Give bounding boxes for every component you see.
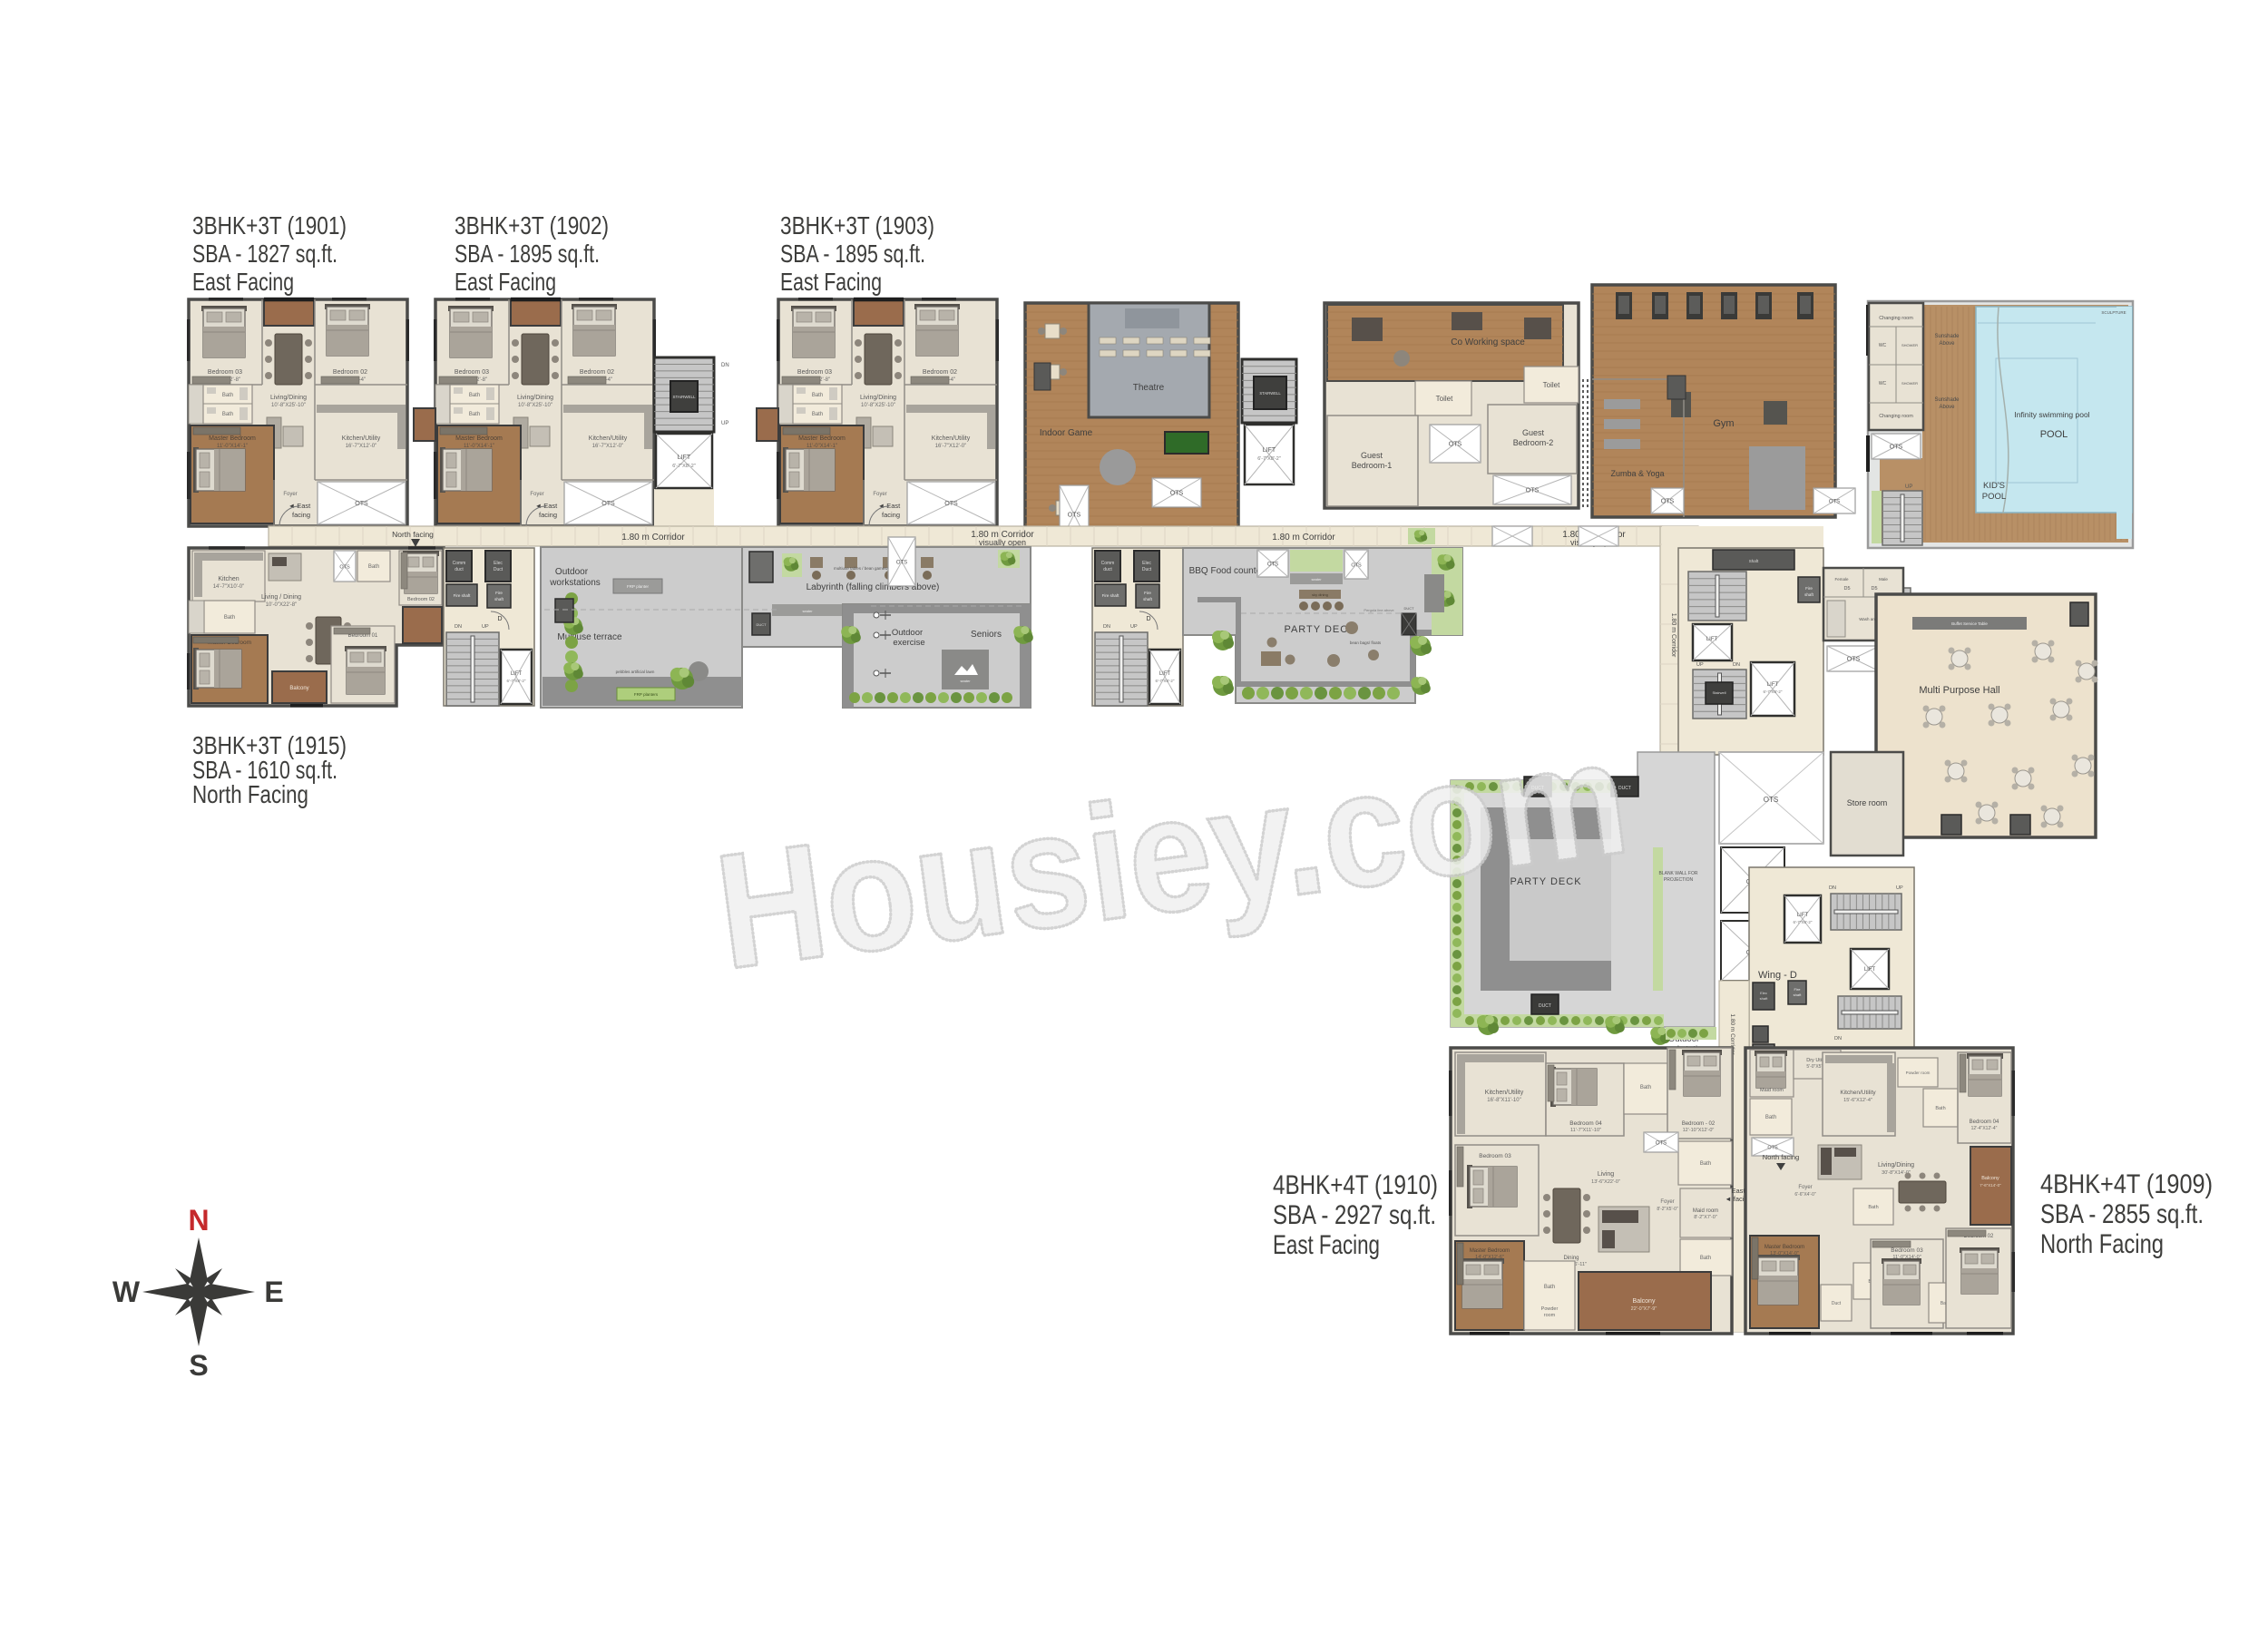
svg-text:Fire shaft: Fire shaft <box>1102 593 1120 598</box>
svg-text:E: E <box>264 1276 283 1308</box>
svg-text:Sunshade: Sunshade <box>1934 334 1960 339</box>
svg-text:◄ East: ◄ East <box>878 502 901 510</box>
svg-text:Bath: Bath <box>1544 1285 1555 1290</box>
svg-text:East Facing: East Facing <box>1273 1230 1380 1260</box>
svg-text:D5: D5 <box>1871 586 1877 592</box>
svg-text:Master Bedroom: Master Bedroom <box>798 435 846 442</box>
svg-text:North facing: North facing <box>392 530 434 539</box>
svg-text:seater: seater <box>802 609 813 613</box>
svg-text:DUCT: DUCT <box>1403 606 1414 611</box>
svg-text:North Facing: North Facing <box>192 780 308 808</box>
svg-text:11'-0"X14'-1": 11'-0"X14'-1" <box>217 444 248 449</box>
svg-text:POOL: POOL <box>2040 429 2068 440</box>
svg-text:FRP planters: FRP planters <box>634 692 659 697</box>
svg-text:DUCT: DUCT <box>1539 1003 1551 1009</box>
svg-text:Bedroom 03: Bedroom 03 <box>208 369 242 376</box>
svg-text:Maid room: Maid room <box>1760 1088 1784 1093</box>
svg-text:OTS: OTS <box>1890 445 1903 451</box>
svg-text:SHOWER: SHOWER <box>1901 343 1918 347</box>
svg-text:Toilet: Toilet <box>1543 381 1560 389</box>
svg-text:Living/Dining: Living/Dining <box>270 395 307 401</box>
svg-text:Powder: Powder <box>1541 1306 1559 1312</box>
svg-text:OTS: OTS <box>1847 657 1861 663</box>
svg-text:SBA - 2855 sq.ft.: SBA - 2855 sq.ft. <box>2040 1199 2204 1229</box>
svg-text:OTS: OTS <box>1829 500 1840 505</box>
svg-text:shaft: shaft <box>1143 597 1153 601</box>
svg-text:Living/Dining: Living/Dining <box>517 395 553 401</box>
svg-text:D: D <box>497 616 502 622</box>
svg-text:Kitchen/Utility: Kitchen/Utility <box>1485 1090 1524 1096</box>
svg-text:Foyer: Foyer <box>283 492 297 497</box>
svg-text:OTS: OTS <box>1170 491 1184 497</box>
svg-text:LIFT: LIFT <box>678 455 691 461</box>
svg-text:SBA - 1895 sq.ft.: SBA - 1895 sq.ft. <box>455 240 600 268</box>
svg-text:Wing - D: Wing - D <box>1758 970 1797 981</box>
svg-text:Living: Living <box>1598 1171 1614 1178</box>
svg-text:Fire shaft: Fire shaft <box>454 593 472 598</box>
svg-text:East Facing: East Facing <box>780 268 882 296</box>
svg-text:Elec: Elec <box>1760 991 1767 995</box>
svg-text:14'-0"X12'-6": 14'-0"X12'-6" <box>1475 1255 1504 1260</box>
svg-text:OTS: OTS <box>1526 488 1540 494</box>
svg-text:shaft: shaft <box>1804 592 1814 597</box>
svg-text:3BHK+3T (1901): 3BHK+3T (1901) <box>192 211 347 240</box>
svg-text:workstations: workstations <box>549 578 601 588</box>
svg-text:Foyer: Foyer <box>1660 1199 1674 1205</box>
svg-text:Seniors: Seniors <box>971 630 1002 640</box>
svg-text:Duct: Duct <box>494 567 503 572</box>
svg-text:visually open: visually open <box>979 538 1026 547</box>
svg-text:Toilet: Toilet <box>1436 395 1453 403</box>
svg-text:Co Working space: Co Working space <box>1451 337 1525 347</box>
svg-text:DN: DN <box>1834 1036 1842 1041</box>
svg-text:OTS: OTS <box>1267 562 1278 568</box>
svg-text:10'-0"X22'-8": 10'-0"X22'-8" <box>266 602 298 608</box>
svg-text:Duct: Duct <box>1832 1301 1842 1306</box>
svg-text:Bath: Bath <box>222 412 233 417</box>
svg-text:Living/Dining: Living/Dining <box>1878 1162 1914 1169</box>
svg-text:Multi Purpose Hall: Multi Purpose Hall <box>1919 685 1999 696</box>
svg-text:PROJECTION: PROJECTION <box>1664 877 1694 883</box>
svg-text:Bath: Bath <box>224 615 235 621</box>
svg-text:pebbles artificial lawn: pebbles artificial lawn <box>616 670 655 674</box>
svg-text:seater: seater <box>960 679 971 683</box>
svg-text:Bedroom-1: Bedroom-1 <box>1352 461 1393 470</box>
svg-text:14'-7"X10'-0": 14'-7"X10'-0" <box>213 584 245 590</box>
svg-text:DN: DN <box>1103 624 1110 630</box>
svg-text:Sunshade: Sunshade <box>1934 397 1960 403</box>
svg-text:Foyer: Foyer <box>530 492 543 497</box>
svg-text:Changing room: Changing room <box>1879 414 1913 419</box>
svg-text:UP: UP <box>1130 624 1138 630</box>
svg-text:10'-8"X25'-10": 10'-8"X25'-10" <box>271 403 306 408</box>
svg-text:8'-2"X5'-0": 8'-2"X5'-0" <box>1657 1207 1677 1212</box>
svg-text:6'-7"X8'-2": 6'-7"X8'-2" <box>1257 456 1281 462</box>
svg-text:D5: D5 <box>1843 586 1850 592</box>
svg-text:FRP planter: FRP planter <box>627 584 649 589</box>
svg-text:Foyer: Foyer <box>1798 1185 1812 1190</box>
svg-text:Bath: Bath <box>1868 1205 1878 1210</box>
svg-text:DN: DN <box>455 624 462 630</box>
svg-text:15'-6"X12'-4": 15'-6"X12'-4" <box>1843 1098 1872 1103</box>
svg-text:Bath: Bath <box>812 393 823 398</box>
svg-text:duct: duct <box>455 567 464 572</box>
svg-text:6'-7"X8'-2": 6'-7"X8'-2" <box>507 679 526 683</box>
svg-text:Master Bedroom: Master Bedroom <box>1765 1245 1804 1250</box>
svg-text:Master Bedroom: Master Bedroom <box>455 435 503 442</box>
svg-text:UP: UP <box>1905 484 1912 490</box>
svg-text:Kitchen/Utility: Kitchen/Utility <box>342 435 381 442</box>
svg-text:Balcony: Balcony <box>289 686 308 691</box>
svg-text:Bath: Bath <box>469 412 480 417</box>
svg-text:1.80 m Corridor: 1.80 m Corridor <box>1272 533 1335 543</box>
svg-text:W: W <box>112 1276 141 1308</box>
svg-text:UP: UP <box>721 421 728 426</box>
svg-text:Gym: Gym <box>1713 418 1734 429</box>
svg-text:OTS: OTS <box>601 501 615 507</box>
svg-text:Above: Above <box>1939 341 1955 347</box>
svg-text:Bedroom 04: Bedroom 04 <box>1970 1120 1999 1125</box>
svg-text:1.80 m Corridor: 1.80 m Corridor <box>1670 613 1677 658</box>
svg-text:◄ East: ◄ East <box>288 502 311 510</box>
svg-text:Fire: Fire <box>495 591 503 595</box>
svg-text:LIFT: LIFT <box>1159 671 1171 677</box>
svg-text:6'-7"X8'-2": 6'-7"X8'-2" <box>672 464 696 469</box>
svg-text:Bedroom 02: Bedroom 02 <box>407 597 435 602</box>
svg-text:Theatre: Theatre <box>1133 383 1165 393</box>
svg-text:Fire: Fire <box>1805 586 1813 591</box>
svg-text:East: East <box>1731 1187 1745 1195</box>
svg-text:4BHK+4T (1910): 4BHK+4T (1910) <box>1273 1170 1438 1200</box>
svg-text:16'-7"X12'-0": 16'-7"X12'-0" <box>935 444 967 449</box>
svg-text:KID'S: KID'S <box>1983 481 2005 491</box>
svg-text:Balcony: Balcony <box>1981 1176 1999 1181</box>
svg-text:Comm: Comm <box>453 561 466 566</box>
svg-text:sky dining: sky dining <box>1312 592 1328 597</box>
svg-text:Living/Dining: Living/Dining <box>860 395 896 401</box>
svg-text:Fire: Fire <box>1144 591 1151 595</box>
svg-text:North Facing: North Facing <box>2040 1229 2164 1259</box>
svg-text:Buffet Service Table: Buffet Service Table <box>1951 621 1988 626</box>
svg-text:Zumba & Yoga: Zumba & Yoga <box>1610 469 1664 478</box>
svg-text:Outdoor: Outdoor <box>555 567 589 577</box>
svg-text:Bath: Bath <box>368 564 379 570</box>
svg-text:UP: UP <box>482 624 489 630</box>
svg-text:Bedroom - 02: Bedroom - 02 <box>1682 1121 1716 1127</box>
svg-text:Foyer: Foyer <box>873 492 886 497</box>
svg-text:◄ East: ◄ East <box>535 502 558 510</box>
svg-text:LIFT: LIFT <box>511 671 523 677</box>
svg-text:Infinity swimming pool: Infinity swimming pool <box>2014 410 2089 419</box>
svg-text:4BHK+4T (1909): 4BHK+4T (1909) <box>2040 1169 2213 1199</box>
svg-text:WC: WC <box>1879 343 1887 348</box>
svg-text:N: N <box>188 1204 209 1237</box>
svg-text:SHOWER: SHOWER <box>1901 381 1918 386</box>
svg-text:Bedroom 02: Bedroom 02 <box>580 369 614 376</box>
svg-text:shaft: shaft <box>494 597 504 601</box>
svg-text:BBQ Food counter: BBQ Food counter <box>1189 566 1265 576</box>
svg-text:Bedroom 02: Bedroom 02 <box>333 369 367 376</box>
svg-text:16'-7"X12'-0": 16'-7"X12'-0" <box>592 444 624 449</box>
svg-text:Dining: Dining <box>1563 1256 1579 1261</box>
svg-text:Fire: Fire <box>1794 987 1802 992</box>
svg-text:12'-10"X12'-0": 12'-10"X12'-0" <box>1683 1128 1715 1133</box>
svg-text:Bath: Bath <box>222 393 233 398</box>
svg-text:BLANK WALL FOR: BLANK WALL FOR <box>1659 871 1698 876</box>
svg-text:Bath: Bath <box>812 412 823 417</box>
svg-text:SBA - 1895 sq.ft.: SBA - 1895 sq.ft. <box>780 240 925 268</box>
svg-text:Comm: Comm <box>1101 561 1115 566</box>
svg-text:STAIRWELL: STAIRWELL <box>1259 391 1281 396</box>
svg-text:6'-7"X8'-2": 6'-7"X8'-2" <box>1156 679 1175 683</box>
svg-text:OTS: OTS <box>1068 513 1081 519</box>
svg-text:OTS: OTS <box>355 501 368 507</box>
svg-text:Elec: Elec <box>494 561 503 566</box>
svg-text:S: S <box>189 1349 208 1382</box>
svg-text:Kitchen/Utility: Kitchen/Utility <box>589 435 628 442</box>
svg-text:UP: UP <box>1896 885 1903 891</box>
svg-text:North facing: North facing <box>1763 1153 1799 1161</box>
svg-text:Above: Above <box>1939 405 1955 410</box>
svg-text:room: room <box>1544 1313 1556 1318</box>
svg-text:OTS: OTS <box>339 565 350 571</box>
svg-text:bean bags/ floats: bean bags/ floats <box>1350 640 1382 645</box>
svg-text:Kitchen/Utility: Kitchen/Utility <box>932 435 971 442</box>
svg-text:seater: seater <box>1311 577 1322 582</box>
svg-text:Kitchen: Kitchen <box>218 576 239 582</box>
svg-text:16'-8"X11'-10": 16'-8"X11'-10" <box>1487 1098 1520 1103</box>
svg-text:facing: facing <box>292 511 310 519</box>
svg-text:Bedroom 02: Bedroom 02 <box>923 369 957 376</box>
svg-text:3BHK+3T (1903): 3BHK+3T (1903) <box>780 211 934 240</box>
svg-text:6'-6"X4'-0": 6'-6"X4'-0" <box>1794 1192 1815 1198</box>
svg-text:OTS: OTS <box>1767 1146 1778 1151</box>
svg-text:LIFT: LIFT <box>1864 967 1876 973</box>
svg-text:shaft: shaft <box>1794 993 1803 997</box>
svg-text:11'-0"X14'-1": 11'-0"X14'-1" <box>464 444 494 449</box>
svg-text:POOL: POOL <box>1982 492 2006 502</box>
svg-text:Pergola line above: Pergola line above <box>1364 608 1394 612</box>
svg-text:22'-0"X7'-9": 22'-0"X7'-9" <box>1631 1306 1657 1312</box>
svg-text:facing: facing <box>882 511 900 519</box>
svg-text:LIFT: LIFT <box>1263 447 1276 454</box>
svg-text:DN: DN <box>1829 885 1836 891</box>
svg-text:Bedroom 03: Bedroom 03 <box>455 369 489 376</box>
svg-text:11'-7"X11'-10": 11'-7"X11'-10" <box>1570 1128 1601 1133</box>
svg-text:7'-6"X14'-0": 7'-6"X14'-0" <box>1980 1183 2001 1188</box>
svg-text:1.80 m Corridor: 1.80 m Corridor <box>621 533 685 543</box>
svg-text:DN: DN <box>721 363 729 368</box>
svg-text:6'-7"X8'-2": 6'-7"X8'-2" <box>1794 920 1813 924</box>
svg-text:OTS: OTS <box>896 561 907 566</box>
svg-text:OTS: OTS <box>1661 499 1675 505</box>
svg-text:Maid room: Maid room <box>1693 1208 1718 1214</box>
svg-text:Bedroom 03: Bedroom 03 <box>797 369 832 376</box>
svg-text:11'-0"X14'-0": 11'-0"X14'-0" <box>1892 1255 1921 1260</box>
svg-text:Guest: Guest <box>1522 428 1545 437</box>
svg-text:PARTY DECK: PARTY DECK <box>1284 624 1355 635</box>
svg-text:Duct: Duct <box>1142 567 1152 572</box>
svg-text:Powder room: Powder room <box>1906 1071 1931 1075</box>
svg-text:UP: UP <box>1696 662 1704 668</box>
svg-text:SCULPTURE: SCULPTURE <box>2101 310 2126 315</box>
svg-text:Balcony: Balcony <box>1633 1298 1656 1305</box>
svg-text:shaft: shaft <box>1760 996 1769 1001</box>
svg-text:Indoor Game: Indoor Game <box>1040 428 1093 438</box>
svg-text:duct: duct <box>1103 567 1112 572</box>
svg-text:Female: Female <box>1834 577 1849 582</box>
svg-text:10'-8"X25'-10": 10'-8"X25'-10" <box>861 403 895 408</box>
svg-text:Bedroom-2: Bedroom-2 <box>1513 438 1554 447</box>
svg-text:11'-0"X14'-1": 11'-0"X14'-1" <box>807 444 837 449</box>
svg-text:Bath: Bath <box>469 393 480 398</box>
svg-text:6'-7"X8'-2": 6'-7"X8'-2" <box>1764 689 1783 694</box>
svg-text:LIFT: LIFT <box>1797 913 1809 918</box>
svg-text:12'-4"X12'-4": 12'-4"X12'-4" <box>1971 1126 1998 1131</box>
svg-text:13'-6"X22'-0": 13'-6"X22'-0" <box>1591 1179 1620 1185</box>
svg-text:Bedroom 03: Bedroom 03 <box>1479 1153 1511 1159</box>
svg-text:Bath: Bath <box>1765 1115 1776 1120</box>
svg-text:Living / Dining: Living / Dining <box>261 594 301 601</box>
svg-text:3BHK+3T (1902): 3BHK+3T (1902) <box>455 211 609 240</box>
svg-text:Master Bedroom: Master Bedroom <box>209 435 256 442</box>
svg-text:facing: facing <box>539 511 557 519</box>
svg-text:10'-8"X25'-10": 10'-8"X25'-10" <box>518 403 552 408</box>
svg-text:OTS: OTS <box>1656 1141 1667 1147</box>
svg-text:OTS: OTS <box>944 501 958 507</box>
svg-text:Store room: Store room <box>1847 798 1888 807</box>
svg-text:13'-0"X14'-0": 13'-0"X14'-0" <box>1770 1251 1799 1257</box>
svg-text:DUCT: DUCT <box>756 622 767 627</box>
svg-text:Bedroom 04: Bedroom 04 <box>1569 1120 1602 1127</box>
svg-text:East Facing: East Facing <box>455 268 556 296</box>
svg-text:OTS: OTS <box>1764 796 1778 804</box>
svg-text:Stairwell: Stairwell <box>1712 690 1725 695</box>
svg-text:OTS: OTS <box>1351 563 1362 569</box>
svg-text:OTS: OTS <box>1449 442 1462 448</box>
svg-text:LIFT: LIFT <box>1767 682 1779 688</box>
svg-text:Master Bedroom: Master Bedroom <box>1470 1248 1510 1254</box>
svg-text:East Facing: East Facing <box>192 268 294 296</box>
svg-text:16'-7"X12'-0": 16'-7"X12'-0" <box>346 444 377 449</box>
svg-text:Male: Male <box>1879 577 1888 582</box>
svg-text:D: D <box>1146 616 1150 622</box>
svg-text:DN: DN <box>1733 662 1740 668</box>
svg-text:Guest: Guest <box>1361 451 1383 460</box>
svg-text:Bedroom 03: Bedroom 03 <box>1891 1247 1923 1254</box>
svg-text:SBA - 2927 sq.ft.: SBA - 2927 sq.ft. <box>1273 1200 1436 1230</box>
svg-text:Outdoor: Outdoor <box>892 628 923 638</box>
svg-text:STAIRWELL: STAIRWELL <box>672 395 696 399</box>
svg-text:8'-2"X7'-0": 8'-2"X7'-0" <box>1694 1215 1717 1220</box>
svg-text:Elec: Elec <box>1142 561 1151 566</box>
svg-text:Shaft: Shaft <box>1749 559 1759 563</box>
svg-text:Bath: Bath <box>1935 1106 1945 1111</box>
svg-text:SBA - 1827 sq.ft.: SBA - 1827 sq.ft. <box>192 240 337 268</box>
svg-text:Labyrinth (falling climbers ab: Labyrinth (falling climbers above) <box>807 582 940 592</box>
svg-text:Bath: Bath <box>1700 1256 1711 1261</box>
svg-text:LIFT: LIFT <box>1706 637 1718 642</box>
svg-text:Bath: Bath <box>1700 1161 1711 1167</box>
svg-text:Changing room: Changing room <box>1879 316 1913 321</box>
svg-text:Bath: Bath <box>1640 1085 1651 1090</box>
svg-text:Kitchen/Utility: Kitchen/Utility <box>1840 1090 1876 1096</box>
svg-text:WC: WC <box>1879 381 1887 386</box>
svg-text:exercise: exercise <box>893 638 924 648</box>
